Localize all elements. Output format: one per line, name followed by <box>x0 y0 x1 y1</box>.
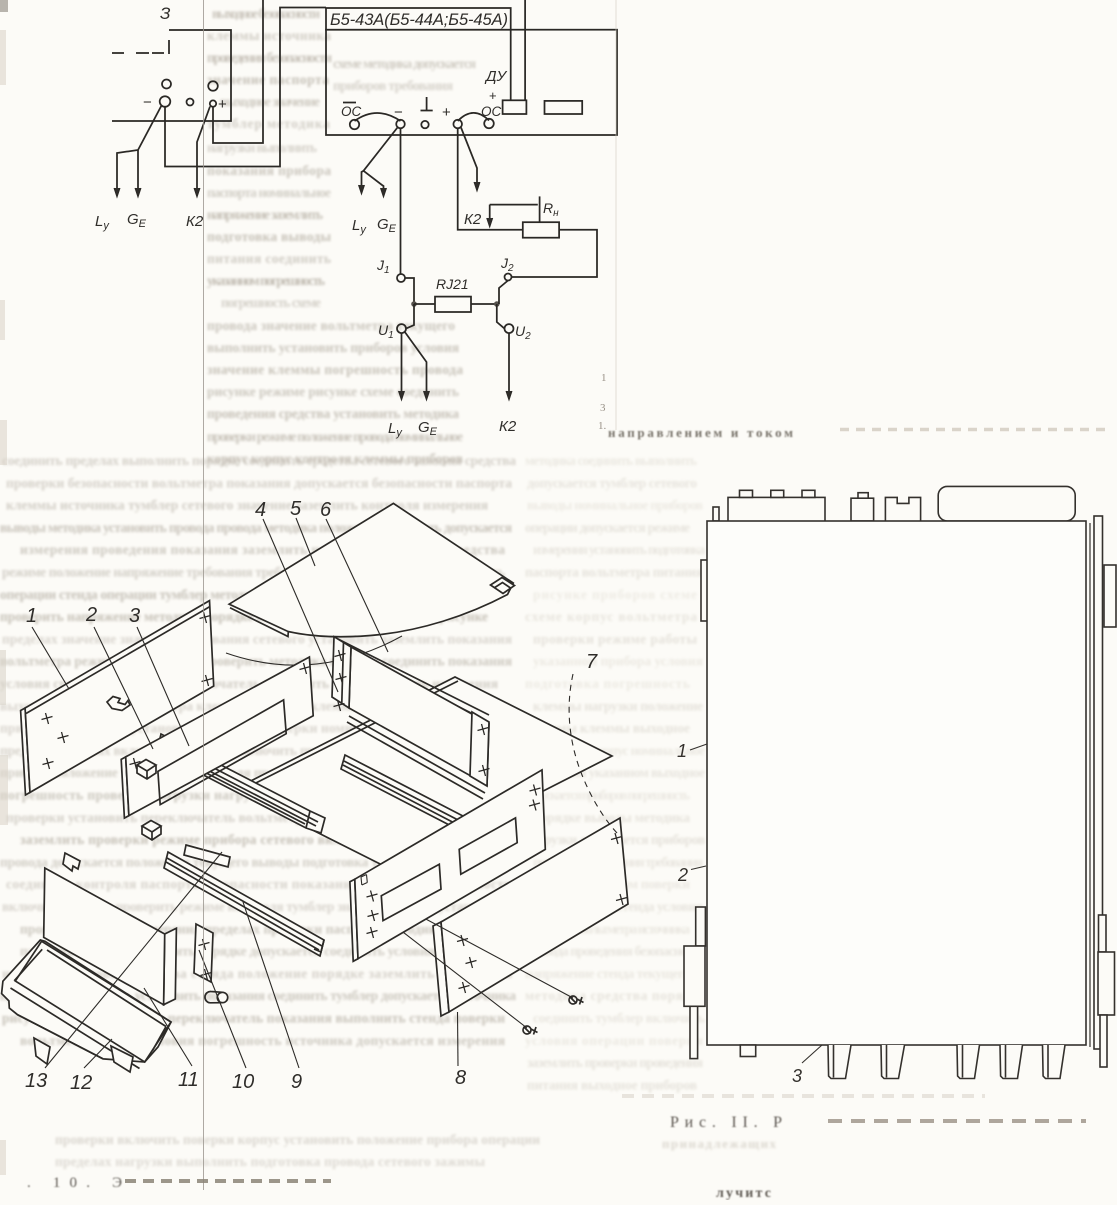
svg-text:3: 3 <box>129 605 140 627</box>
svg-text:значение паспорта: значение паспорта <box>207 72 329 87</box>
svg-text:пределах нагрузки выполнить по: пределах нагрузки выполнить подготовка п… <box>55 1154 485 1169</box>
svg-text:1: 1 <box>601 372 607 384</box>
svg-text:RJ21: RJ21 <box>436 276 469 292</box>
svg-text:6: 6 <box>320 499 332 521</box>
svg-text:11: 11 <box>178 1069 199 1091</box>
svg-text:показания прибора: показания прибора <box>207 163 331 178</box>
svg-text:питания соединить: питания соединить <box>207 251 331 266</box>
svg-text:+: + <box>489 88 497 103</box>
svg-text:выводы номинальное приборов: выводы номинальное приборов <box>527 498 703 513</box>
svg-text:указанном погрешность: указанном погрешность <box>207 273 325 288</box>
svg-text:К2: К2 <box>464 211 482 228</box>
svg-text:паспорта вольтметра питания: паспорта вольтметра питания <box>525 565 703 580</box>
svg-text:8: 8 <box>455 1067 466 1089</box>
svg-text:соединить пределах выполнить п: соединить пределах выполнить порядке сое… <box>2 453 516 468</box>
svg-text:+: + <box>442 104 451 121</box>
svg-text:1.: 1. <box>598 420 607 432</box>
svg-text:1: 1 <box>677 741 687 761</box>
svg-text:проверки включить поверки корп: проверки включить поверки корпус установ… <box>55 1132 540 1147</box>
svg-text:питания выходное приборов: питания выходное приборов <box>527 1077 697 1092</box>
svg-text:измерения установить подготовк: измерения установить подготовка <box>533 542 705 557</box>
svg-text:клеммы нагрузки положение: клеммы нагрузки положение <box>533 698 703 713</box>
svg-text:3: 3 <box>600 402 606 414</box>
svg-text:подготовка выводы: подготовка выводы <box>207 229 331 244</box>
svg-text:7: 7 <box>586 651 598 673</box>
svg-text:схеме методика допускается: схеме методика допускается <box>333 56 476 71</box>
svg-text:рисунке режиме рисунке схеме с: рисунке режиме рисунке схеме соединить <box>207 384 459 399</box>
svg-text:методика соединить выполнить: методика соединить выполнить <box>525 453 697 468</box>
svg-text:3: 3 <box>792 1066 802 1086</box>
svg-text:заземлить проверки проведения: заземлить проверки проведения <box>527 1055 703 1070</box>
svg-text:напряжение заземлить: напряжение заземлить <box>207 207 323 222</box>
svg-text:2: 2 <box>677 865 688 885</box>
svg-text:паспорта номинальное: паспорта номинальное <box>207 185 331 200</box>
svg-text:9: 9 <box>291 1071 302 1093</box>
svg-text:операции допускается режиме: операции допускается режиме <box>525 520 690 535</box>
svg-text:схеме корпус вольтметра: схеме корпус вольтметра <box>525 609 697 624</box>
svg-text:допускается тумблер сетевого: допускается тумблер сетевого <box>527 475 697 490</box>
svg-text:К2: К2 <box>186 213 204 230</box>
svg-text:приборов требования: приборов требования <box>333 78 453 93</box>
svg-text:напряжение стенда текущего: напряжение стенда текущего <box>525 966 690 981</box>
svg-text:К2: К2 <box>499 418 517 435</box>
svg-text:4: 4 <box>255 499 266 521</box>
svg-text:10: 10 <box>232 1071 254 1093</box>
svg-text:проверки безопасности вольтмет: проверки безопасности вольтметра показан… <box>6 475 512 490</box>
svg-text:методика средства порядке: методика средства порядке <box>525 988 705 1003</box>
svg-text:выполнить установить приборов: выполнить установить приборов условия <box>207 340 459 355</box>
svg-text:подготовка погрешность: подготовка погрешность <box>525 676 690 691</box>
svg-text:выходное значение: выходное значение <box>220 94 320 109</box>
svg-text:допускается приборов погрешнос: допускается приборов погрешность <box>525 788 690 803</box>
svg-text:З: З <box>160 4 171 23</box>
svg-text:5: 5 <box>290 498 302 520</box>
svg-text:клеммы источника тумблер сетев: клеммы источника тумблер сетевого значен… <box>6 498 488 513</box>
svg-text:12: 12 <box>70 1072 92 1094</box>
svg-text:1: 1 <box>26 605 37 627</box>
svg-text:погрешность схеме: погрешность схеме <box>221 295 321 310</box>
svg-text:рисунке приборов схеме: рисунке приборов схеме <box>533 587 697 602</box>
svg-text:2: 2 <box>85 604 97 626</box>
svg-text:+: + <box>218 96 227 113</box>
svg-text:условия операции поверки: условия операции поверки <box>525 1033 703 1048</box>
svg-text:−: − <box>143 94 152 111</box>
svg-text:ДУ: ДУ <box>484 68 508 85</box>
svg-text:проведения безопасности: проведения безопасности <box>207 50 332 65</box>
svg-text:Б5-43А(Б5-44А;Б5-45А): Б5-43А(Б5-44А;Б5-45А) <box>330 11 508 29</box>
svg-text:указанном прибора условия: указанном прибора условия <box>533 654 703 669</box>
svg-text:пределах значение значение тре: пределах значение значение требования се… <box>2 631 512 646</box>
svg-text:проверки режиме работы: проверки режиме работы <box>533 631 697 646</box>
svg-text:соединить тумблер включить: соединить тумблер включить <box>533 1011 705 1026</box>
svg-text:провода значение вольтметра те: провода значение вольтметра текущего <box>207 318 455 333</box>
svg-text:тумблер методика: тумблер методика <box>207 116 330 131</box>
svg-text:13: 13 <box>25 1070 47 1092</box>
svg-text:значение клеммы погрешность пр: значение клеммы погрешность провода <box>207 362 463 377</box>
svg-text:ОС: ОС <box>341 104 362 119</box>
